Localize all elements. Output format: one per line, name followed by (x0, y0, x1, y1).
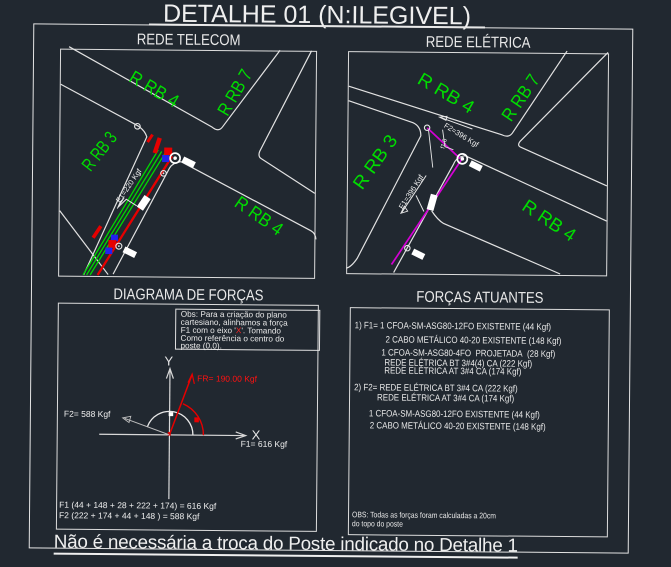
svg-text:FR= 190.00 Kgf: FR= 190.00 Kgf (197, 373, 257, 384)
svg-text:F1 (44 + 148 + 28 + 222 + 174): F1 (44 + 148 + 28 + 222 + 174) = 616 Kgf (59, 500, 217, 511)
svg-text:R RB 4: R RB 4 (518, 195, 580, 246)
svg-text:R RB 3: R RB 3 (348, 130, 401, 193)
svg-text:F2= 588 Kgf: F2= 588 Kgf (64, 409, 111, 419)
svg-text:R RB 3: R RB 3 (77, 127, 121, 175)
svg-text:R RB 7: R RB 7 (213, 65, 256, 119)
svg-text:R RB 4: R RB 4 (231, 191, 287, 239)
svg-text:Y: Y (164, 354, 173, 369)
svg-text:poste (0,0).: poste (0,0). (180, 341, 221, 350)
svg-text:F1= 616 Kgf: F1= 616 Kgf (241, 439, 288, 449)
svg-text:F1=396 Kgf: F1=396 Kgf (397, 172, 426, 210)
svg-text:R RB 4: R RB 4 (126, 66, 183, 112)
svg-text:F2 (222 + 174 + 44 + 148 ) = 5: F2 (222 + 174 + 44 + 148 ) = 588 Kgf (59, 510, 200, 521)
